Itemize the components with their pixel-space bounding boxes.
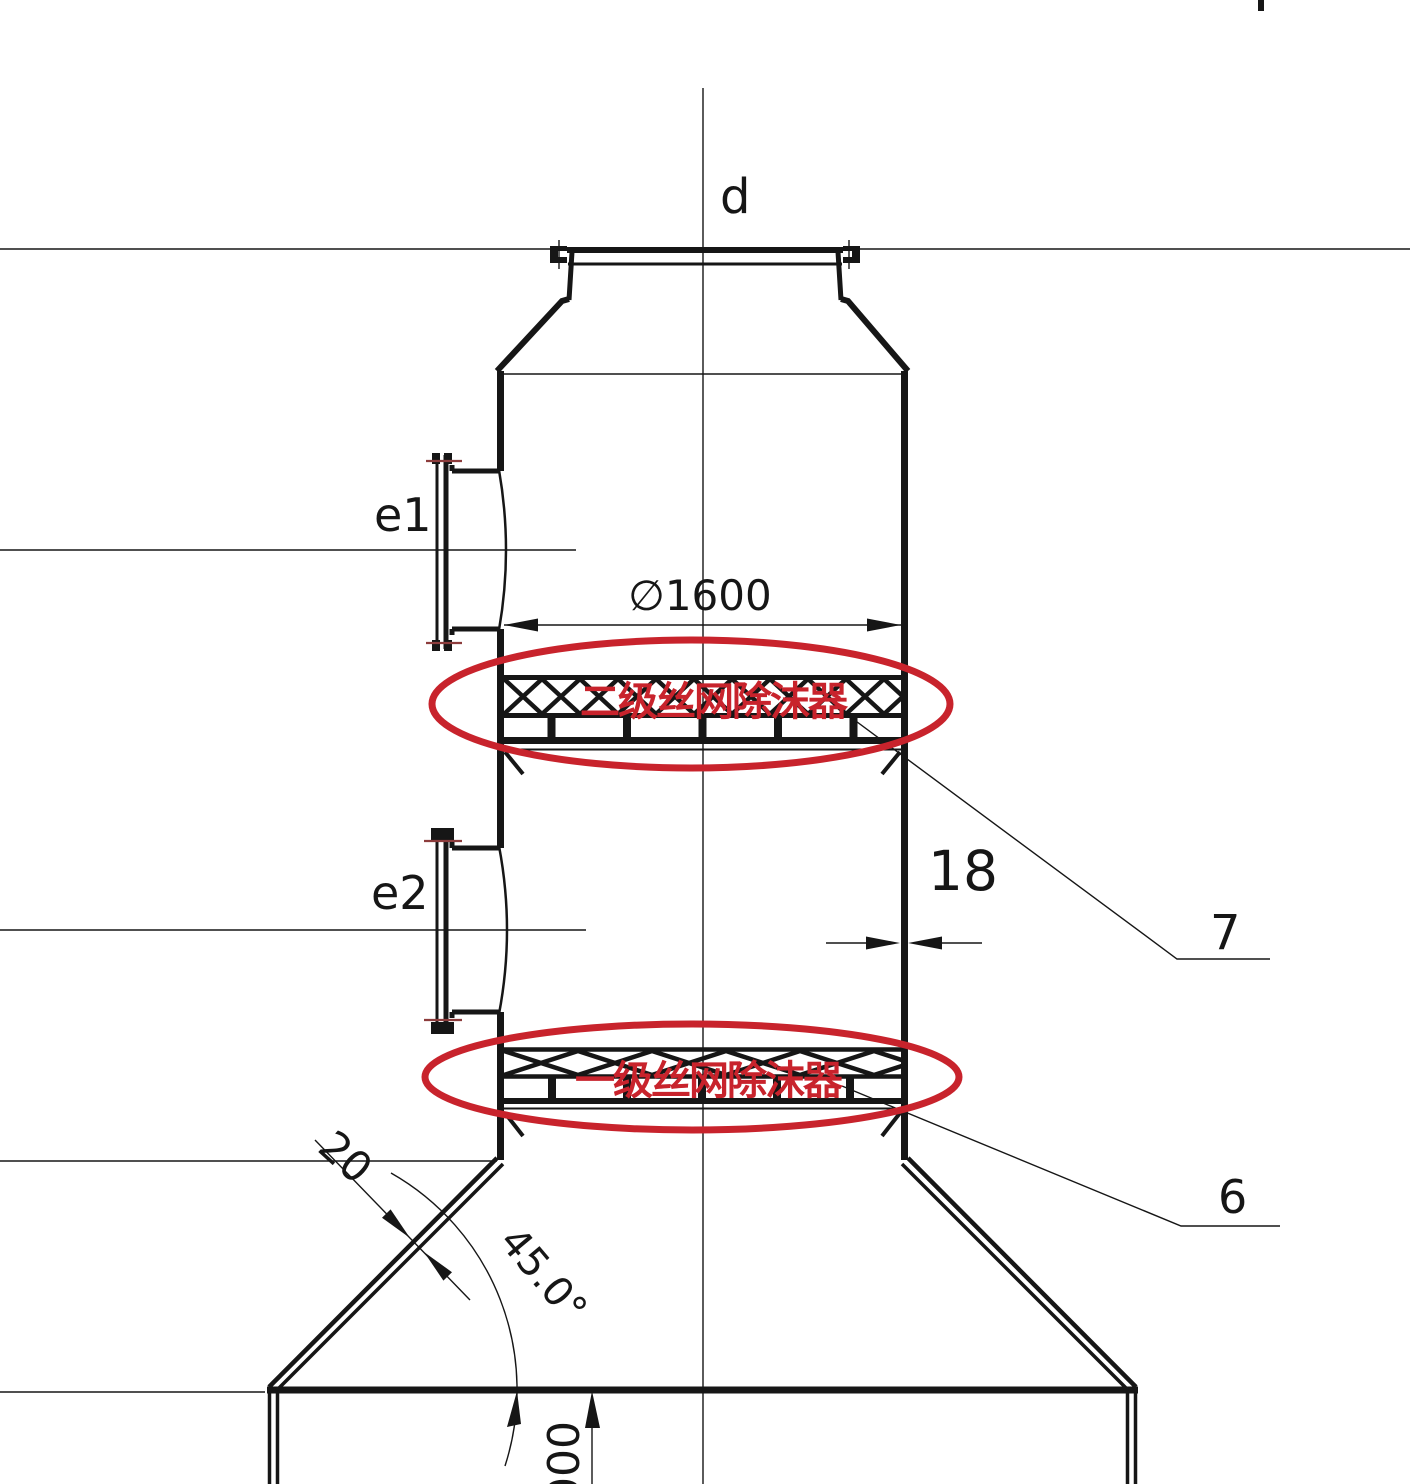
neck-left — [569, 252, 572, 300]
cone-thickness-value: 20 — [309, 1121, 382, 1193]
e2-flange-bottom-cap — [431, 1022, 454, 1034]
e1-neck-top — [452, 465, 500, 471]
item-7-label: 7 — [1210, 905, 1241, 961]
upper-bracket-right — [882, 752, 900, 774]
e1-flange-top-bolt — [444, 453, 452, 464]
cone-outer-left — [269, 1158, 497, 1387]
arrowhead-right — [867, 619, 901, 632]
leader-line-7 — [845, 713, 1270, 959]
flange-tab-right-notch — [843, 251, 852, 257]
neck-right — [838, 252, 841, 300]
item-6-label: 6 — [1218, 1170, 1247, 1224]
engineering-drawing: { "labels": { "top_nozzle": "d", "nozzle… — [0, 0, 1410, 1484]
e2-flange-top-cap — [431, 828, 454, 840]
wall-thickness-value: 18 — [928, 839, 998, 903]
upper-demister-annotation: 二级丝网除沫器 — [580, 679, 849, 725]
cone-outer-right — [908, 1158, 1136, 1387]
dim-wall-thickness: 18 — [826, 839, 998, 950]
cone-inner-left — [276, 1164, 503, 1391]
top-nozzle-label: d — [720, 169, 750, 225]
e2-label: e2 — [371, 866, 429, 920]
reference-lines — [0, 88, 1410, 1484]
bottom-dim-value: 000 — [536, 1421, 587, 1484]
e1-flange-top-bolt — [432, 453, 440, 464]
e1-neck-bottom — [452, 629, 500, 635]
drawing-canvas: d — [0, 0, 1410, 1484]
head-cone-left — [497, 299, 569, 371]
diameter-value: ∅1600 — [628, 571, 771, 620]
lower-demister-annotation: 一级丝网除沫器 — [575, 1058, 844, 1104]
nozzle-e1: e1 — [374, 453, 506, 651]
arrowhead-to-wall-right — [908, 937, 942, 950]
e1-flange-bottom-bolt — [432, 640, 440, 651]
angle-arc-arrowhead — [507, 1391, 521, 1427]
e1-label: e1 — [374, 488, 432, 542]
stray-mark-top-right — [1258, 0, 1264, 11]
head-cone-right — [841, 299, 908, 371]
angle-arc — [391, 1173, 517, 1466]
nozzle-e2: e2 — [371, 828, 507, 1034]
dim-bottom-partial: 000 — [536, 1391, 600, 1484]
leader-item-7: 7 — [845, 713, 1270, 961]
cone-inner-right — [902, 1164, 1129, 1391]
e2-neck-bottom — [452, 1012, 500, 1018]
e2-neck-top — [452, 842, 500, 848]
arrowhead-to-wall-left — [866, 937, 900, 950]
arrowhead-left — [504, 619, 538, 632]
e1-flange-bottom-bolt — [444, 640, 452, 651]
